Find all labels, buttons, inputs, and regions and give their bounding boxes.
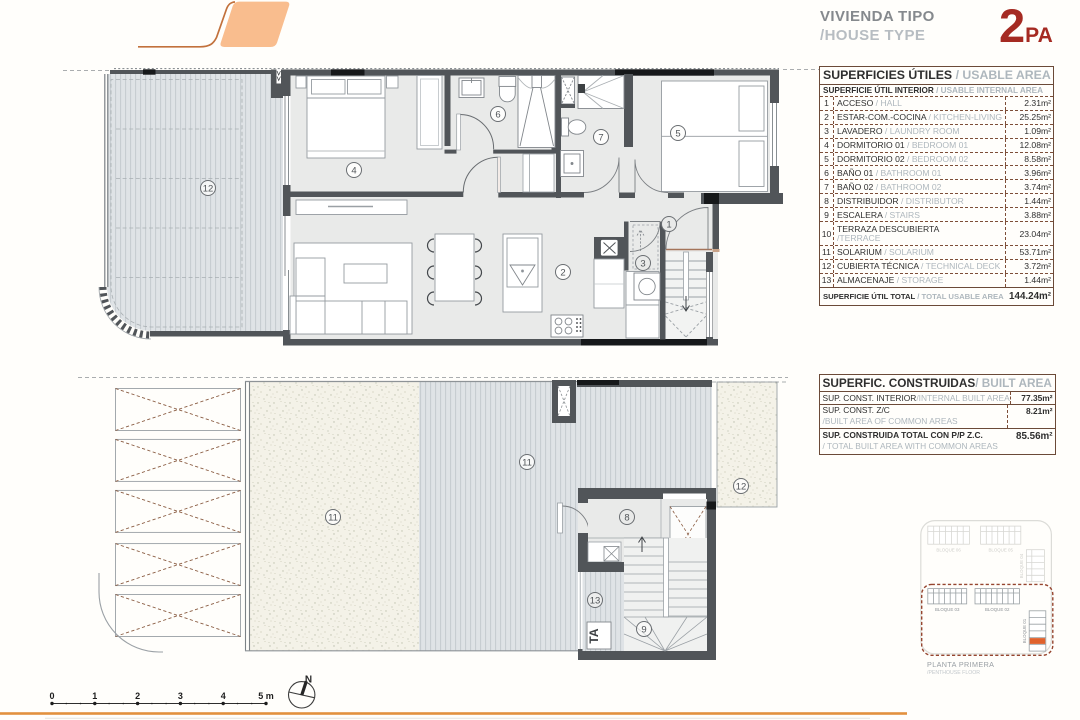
svg-text:PLANTA PRIMERA: PLANTA PRIMERA	[927, 660, 994, 669]
svg-text:1: 1	[666, 219, 671, 230]
svg-text:BLOQUE 05: BLOQUE 05	[988, 548, 1013, 553]
svg-text:BLOQUE 01: BLOQUE 01	[1022, 618, 1027, 643]
svg-text:BLOQUE 04: BLOQUE 04	[1019, 553, 1024, 578]
svg-text:BLOQUE 03: BLOQUE 03	[935, 607, 960, 612]
svg-text:11: 11	[328, 512, 338, 523]
svg-text:6: 6	[495, 109, 500, 120]
svg-text:0: 0	[49, 691, 54, 701]
svg-text:2: 2	[560, 267, 565, 278]
svg-text:5 m: 5 m	[258, 691, 274, 701]
svg-text:11: 11	[522, 457, 532, 468]
svg-text:3: 3	[178, 691, 183, 701]
svg-text:9: 9	[641, 624, 646, 635]
svg-text:BLOQUE 02: BLOQUE 02	[985, 607, 1010, 612]
svg-text:5: 5	[675, 128, 680, 139]
svg-text:12: 12	[736, 481, 747, 492]
svg-text:TA: TA	[587, 628, 601, 643]
svg-text:3: 3	[640, 258, 645, 269]
svg-text:8: 8	[624, 512, 629, 523]
svg-text:BLOQUE 06: BLOQUE 06	[936, 548, 961, 553]
svg-text:/PENTHOUSE FLOOR: /PENTHOUSE FLOOR	[927, 670, 980, 676]
svg-text:4: 4	[221, 691, 226, 701]
svg-text:4: 4	[351, 165, 356, 176]
svg-text:7: 7	[598, 132, 603, 143]
svg-text:13: 13	[590, 595, 601, 606]
svg-text:1: 1	[92, 691, 97, 701]
svg-text:12: 12	[203, 183, 214, 194]
svg-text:2: 2	[135, 691, 140, 701]
svg-text:N: N	[305, 675, 312, 686]
